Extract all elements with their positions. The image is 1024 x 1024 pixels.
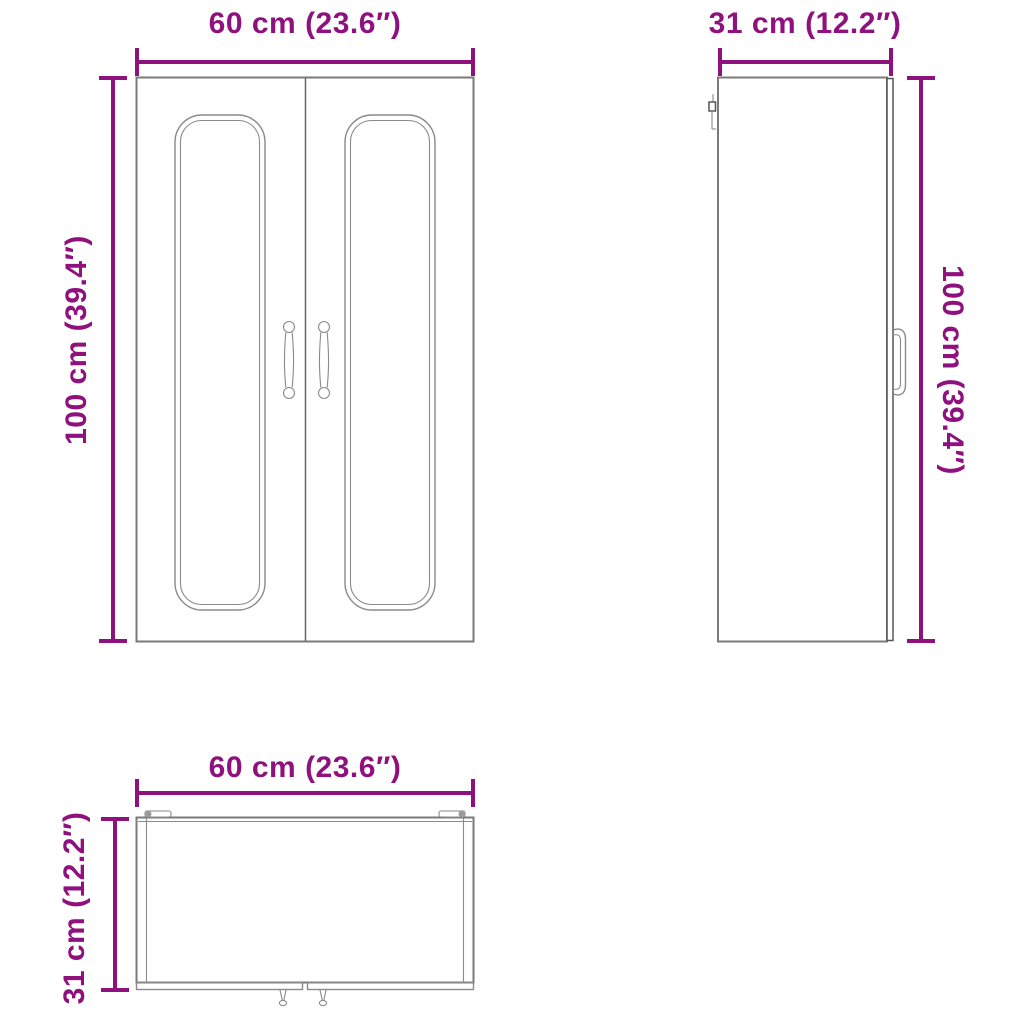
right-hinge <box>439 811 465 817</box>
right-handle-top-profile <box>319 990 326 1006</box>
right-door-top-profile <box>308 983 474 990</box>
hinge-bracket <box>709 94 716 129</box>
side-width-label: 31 cm (12.2″) <box>645 6 965 42</box>
top-depth-dimension-line <box>113 817 117 992</box>
door-edge-profile <box>887 79 893 641</box>
left-hinge <box>145 811 171 817</box>
front-height-dimension-line <box>111 76 115 643</box>
cabinet-top-outline <box>137 818 474 983</box>
front-width-label: 60 cm (23.6″) <box>135 6 475 42</box>
side-handle <box>893 329 906 395</box>
left-handle-top-profile <box>279 990 286 1006</box>
front-height-label: 100 cm (39.4″) <box>57 180 97 500</box>
dimension-diagram: 60 cm (23.6″) 100 cm (39.4″) <box>0 0 1024 1024</box>
front-view-drawing <box>135 76 475 643</box>
top-width-label: 60 cm (23.6″) <box>135 750 475 786</box>
front-width-dimension-line <box>135 60 475 64</box>
side-view-drawing <box>705 76 920 643</box>
left-door-top-profile <box>137 983 303 990</box>
side-width-dimension-line <box>718 60 893 64</box>
top-view-drawing <box>135 804 475 1014</box>
cabinet-side-outline <box>718 78 887 642</box>
top-width-dimension-line <box>135 791 475 795</box>
top-depth-label: 31 cm (12.2″) <box>55 748 95 1024</box>
side-height-label: 100 cm (39.4″) <box>932 210 972 530</box>
